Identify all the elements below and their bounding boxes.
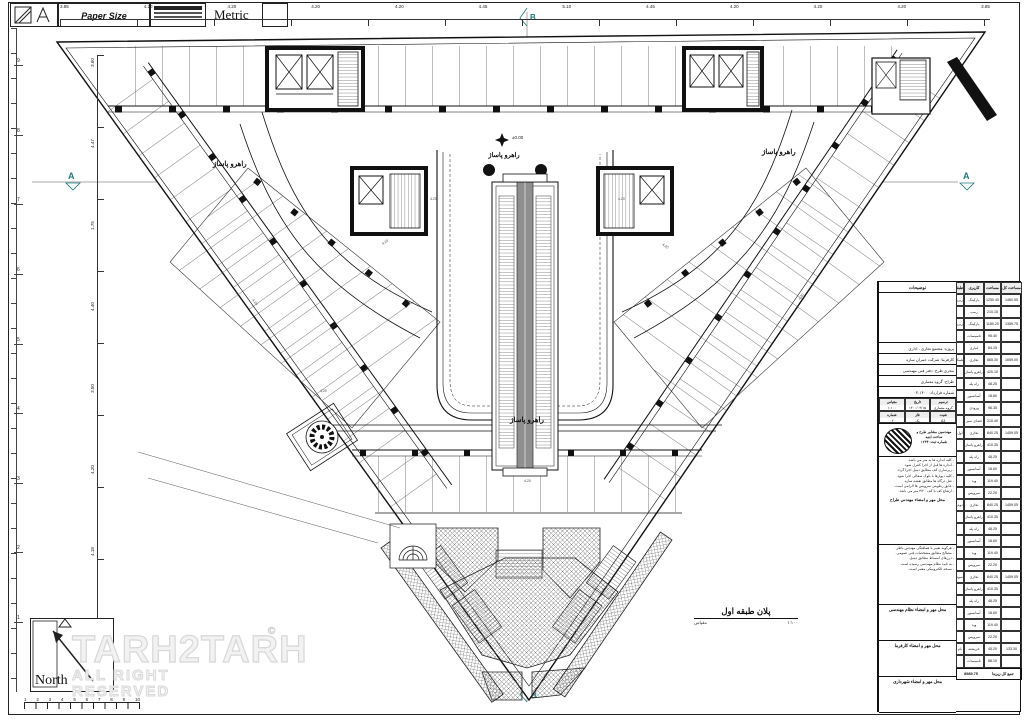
cell-area: 96.35 (984, 402, 1001, 414)
scale-number: 7 (98, 697, 101, 702)
top-dimension-numbers: 3.854.204.204.204.204.455.104.454.204.20… (60, 4, 990, 9)
col-floor: طبقه (956, 282, 964, 294)
cell-usage: انباری (964, 342, 984, 354)
cell-floor (956, 655, 964, 667)
floor-plan-drawing: A A B B (0, 0, 1025, 720)
left-dimension-line (97, 55, 104, 640)
notes-empty-box (879, 293, 956, 343)
dimension-value: 3.50 (90, 384, 95, 393)
staircase (747, 52, 759, 106)
dimension-value: 5.10 (562, 4, 571, 9)
cell-total (1001, 511, 1022, 523)
cell-usage: راهرو پاساژ (964, 583, 984, 595)
cell-total: 1359.75 (1001, 318, 1022, 330)
cell-total (1001, 306, 1022, 318)
cell-usage: وید (964, 475, 984, 487)
cell-floor (956, 607, 964, 619)
cell-total: 1659.00 (1001, 354, 1022, 366)
cell-total (1001, 523, 1022, 535)
seal-box: محل مهر و امضاء شهرداری (879, 677, 956, 713)
core-wing-right (598, 168, 672, 234)
cell-total (1001, 342, 1022, 354)
cell-usage: تجاری (964, 499, 984, 511)
drawing-sheet: A A B B (0, 0, 1025, 720)
table-row: 18.60 آسانسور (956, 607, 1022, 619)
cell-area: 420.10 (984, 366, 1001, 378)
scale-number: 6 (86, 697, 89, 702)
signature-cell: تاریخ۱۴۰۰/۰۴/۱۵ (905, 398, 931, 411)
plan-scale-value: ۱:۱۰۰ (787, 620, 798, 626)
scale-number: 8 (110, 697, 113, 702)
table-row: 1459.05 840.25 تجاری اول (956, 427, 1022, 439)
project-info-row: پروژه: مجتمع تجاری - اداری (879, 343, 956, 354)
cell-usage: راهرو پاساژ (964, 439, 984, 451)
svg-text:4.20: 4.20 (320, 389, 327, 393)
stamp-line2: شماره ثبت: ۱۲۳۴ (914, 440, 954, 445)
stamp-line1: مهندسین مشاور طرح و ساخت ابنیه (914, 430, 954, 440)
staircase (604, 174, 634, 228)
cell-area: 119.40 (984, 619, 1001, 631)
svg-text:4.20: 4.20 (430, 197, 437, 201)
cell-usage: وید (964, 619, 984, 631)
corridor-label-right: راهرو پاساژ (761, 148, 796, 157)
cell-area: 410.35 (984, 439, 1001, 451)
units-bar (154, 12, 202, 14)
cell-area: 840.25 (984, 499, 1001, 511)
seal-boxes: محل مهر و امضاء نظام مهندسیمحل مهر و امض… (879, 605, 956, 713)
cell-area: 22.20 (984, 559, 1001, 571)
cell-floor (956, 511, 964, 523)
svg-text:4.20: 4.20 (524, 479, 531, 483)
cell-floor (956, 378, 964, 390)
cell-area: 22.20 (984, 631, 1001, 643)
col-area: مساحت (984, 282, 1001, 294)
project-info-row: مجری طرح: دفتر فنی مهندسی (879, 365, 956, 376)
cell-floor (956, 583, 964, 595)
plan-title: پلان طبقه اول (694, 606, 798, 619)
cell-area: 84.15 (984, 342, 1001, 354)
cell-usage: راه پله (964, 378, 984, 390)
cell-floor (956, 402, 964, 414)
table-row: 18.60 آسانسور (956, 463, 1022, 475)
section-marker-a-right: A (963, 171, 970, 181)
cell-floor (956, 415, 964, 427)
cell-floor: همکف (956, 354, 964, 366)
cell-usage: تاسیسات (964, 655, 984, 667)
top-dimension-line (60, 19, 990, 26)
table-row: 84.15 انباری (956, 342, 1022, 354)
cell-total (1001, 487, 1022, 499)
sheet-logo-box (10, 3, 58, 27)
cell-total (1001, 378, 1022, 390)
cell-floor (956, 366, 964, 378)
scale-number: 4 (61, 697, 64, 702)
cell-area: 1250.40 (984, 294, 1001, 306)
stair-semicircular (390, 524, 436, 568)
cell-total (1001, 535, 1022, 547)
cell-total (1001, 463, 1022, 475)
cell-total (1001, 415, 1022, 427)
cell-total (1001, 619, 1022, 631)
cell-area: 18.60 (984, 463, 1001, 475)
escalator (492, 174, 558, 476)
cell-total (1001, 631, 1022, 643)
core-top-right (684, 48, 762, 110)
title-block-left: توضیحات پروژه: مجتمع تجاری - اداریکارفرم… (878, 282, 956, 711)
cell-area: 840.25 (984, 427, 1001, 439)
cell-area: 210.40 (984, 415, 1001, 427)
cell-usage: تاسیسات (964, 330, 984, 342)
designer-sign-label: محل مهر و امضاء مهندس طراح (879, 497, 956, 502)
cell-area: 48.25 (984, 595, 1001, 607)
cell-floor (956, 619, 964, 631)
dimension-value: 4.20 (395, 4, 404, 9)
cell-floor: دوم (956, 499, 964, 511)
cell-floor: زیرزمین ۲ (956, 294, 964, 306)
cell-usage: تجاری (964, 427, 984, 439)
cell-total: 1459.05 (1001, 427, 1022, 439)
cell-total (1001, 475, 1022, 487)
cell-usage: پارکینگ (964, 318, 984, 330)
table-row: 48.25 راه پله (956, 378, 1022, 390)
cell-area: 18.60 (984, 390, 1001, 402)
cell-floor (956, 390, 964, 402)
project-info-row: شماره قرارداد: ۱۴۰۰-۰۴ (879, 387, 956, 398)
cell-area: 119.40 (984, 475, 1001, 487)
cell-floor (956, 306, 964, 318)
column-circle-left (484, 165, 495, 176)
cell-floor (956, 487, 964, 499)
col-total: مساحت کل (1001, 282, 1022, 294)
ramp-strip (947, 57, 997, 121)
cell-total (1001, 439, 1022, 451)
cell-total (1001, 390, 1022, 402)
consultant-stamp: مهندسین مشاور طرح و ساخت ابنیه شماره ثبت… (879, 424, 956, 457)
cell-area: 410.35 (984, 511, 1001, 523)
cell-area: 119.40 (984, 547, 1001, 559)
cell-area: 48.25 (984, 378, 1001, 390)
dimension-value: 3.60 (90, 58, 95, 67)
cell-floor (956, 595, 964, 607)
table-row: 22.20 سرویس (956, 487, 1022, 499)
cell-usage: پارکینگ (964, 294, 984, 306)
plan-scale-label: مقیاس (694, 620, 707, 626)
col-usage: کاربری (964, 282, 984, 294)
signature-cell: فازیک (905, 411, 931, 424)
dimension-value: 4.18 (90, 547, 95, 556)
cell-floor (956, 559, 964, 571)
dimension-value: 4.20 (227, 4, 236, 9)
top-shop-band (108, 46, 898, 112)
scale-number: 5 (73, 697, 76, 702)
table-row: 48.25 راه پله (956, 523, 1022, 535)
dimension-value: 3.85 (60, 4, 69, 9)
area-schedule-table: مساحت کل مساحت کاربری طبقه 1460.55 1250.… (956, 282, 1022, 711)
cell-floor (956, 439, 964, 451)
project-info-row: کارفرما: شرکت عمران سازه (879, 354, 956, 365)
table-row: 1659.00 865.30 تجاری همکف (956, 354, 1022, 366)
table-row: 22.20 سرویس (956, 559, 1022, 571)
dimension-value: 4.45 (479, 4, 488, 9)
cell-usage: تجاری (964, 354, 984, 366)
sheet-logo-icon (11, 4, 57, 26)
cell-area: 88.10 (984, 655, 1001, 667)
dimension-value: 3.85 (981, 4, 990, 9)
cell-usage: وید (964, 547, 984, 559)
table-row: 18.60 آسانسور (956, 390, 1022, 402)
project-info-row: طراح: گروه معماری (879, 376, 956, 387)
cell-total (1001, 330, 1022, 342)
signature-grid: ترسیمگروه معماریتاریخ۱۴۰۰/۰۴/۱۵مقیاس۱:۱۰… (879, 398, 956, 424)
staircase (900, 60, 926, 100)
cell-area: 48.25 (984, 451, 1001, 463)
table-row: 119.40 وید (956, 619, 1022, 631)
cell-area: 95.40 (984, 330, 1001, 342)
cell-area: 865.30 (984, 354, 1001, 366)
note-line: - ارتفاع کف تا کف ۴/۲۰ متر می باشد. (881, 489, 954, 494)
cell-usage: سرویس (964, 487, 984, 499)
table-row: 210.40 فضای سبز (956, 415, 1022, 427)
table-row: 1459.05 840.25 تجاری دوم (956, 499, 1022, 511)
cell-area: 840.25 (984, 571, 1001, 583)
scale-number: 9 (123, 697, 126, 702)
table-row: 95.40 تاسیسات (956, 330, 1022, 342)
cell-total: 1459.05 (1001, 571, 1022, 583)
cell-usage: سرویس (964, 631, 984, 643)
project-info-rows: پروژه: مجتمع تجاری - اداریکارفرما: شرکت … (879, 343, 956, 398)
corridor-label-center-top: راهرو پاساژ (487, 151, 520, 159)
dimension-value: 4.40 (90, 302, 95, 311)
signature-cell: مقیاس۱:۱۰۰ (879, 398, 905, 411)
cell-total: 1460.55 (1001, 294, 1022, 306)
seal-box: محل مهر و امضاء کارفرما (879, 641, 956, 677)
footer-value: 8989.75 (964, 672, 978, 676)
table-row: 410.35 راهرو پاساژ (956, 511, 1022, 523)
dimension-value: 4.20 (897, 4, 906, 9)
cell-floor: اول (956, 427, 964, 439)
north-label: North (35, 673, 68, 689)
dimension-value: 4.47 (90, 140, 95, 149)
cell-area: 45.20 (984, 643, 1001, 655)
cell-floor (956, 463, 964, 475)
cell-usage: راه پله (964, 451, 984, 463)
units-bar (154, 16, 202, 18)
table-row: 48.25 راه پله (956, 451, 1022, 463)
scale-bar-ticks (24, 702, 140, 709)
cell-usage: فضای سبز (964, 415, 984, 427)
cell-total (1001, 595, 1022, 607)
table-row: 420.10 راهرو پاساژ (956, 366, 1022, 378)
stamp-logo-icon (884, 428, 912, 454)
table-row: 18.60 آسانسور (956, 535, 1022, 547)
seal-box: محل مهر و امضاء نظام مهندسی (879, 605, 956, 641)
cell-usage: راهرو پاساژ (964, 511, 984, 523)
svg-text:4.20: 4.20 (618, 197, 625, 201)
dimension-value: 4.20 (814, 4, 823, 9)
signature-cell: ترسیمگروه معماری (930, 398, 956, 411)
schedule-rows: 1460.55 1250.40 پارکینگ زیرزمین ۲ 210.15… (956, 294, 1022, 667)
cell-floor (956, 451, 964, 463)
cell-usage: سرویس (964, 559, 984, 571)
cell-area: 48.25 (984, 523, 1001, 535)
dimension-value: 4.20 (730, 4, 739, 9)
cell-floor (956, 330, 964, 342)
cell-area: 22.20 (984, 487, 1001, 499)
cell-floor (956, 535, 964, 547)
cell-usage: راه پله (964, 595, 984, 607)
cell-floor (956, 523, 964, 535)
corridor-label-center-bottom: راهرو پاساژ (509, 416, 544, 425)
cell-usage: تجاری (964, 571, 984, 583)
table-row: 96.35 ورودی (956, 402, 1022, 414)
cell-total (1001, 402, 1022, 414)
cell-area: 1180.20 (984, 318, 1001, 330)
left-edge-ruler (11, 28, 17, 692)
cell-floor (956, 631, 964, 643)
table-row: 88.10 تاسیسات (956, 655, 1022, 667)
cell-total: 133.30 (1001, 643, 1022, 655)
scale-number: 2 (36, 697, 39, 702)
table-row: 210.15 رمپ (956, 306, 1022, 318)
cell-usage: آسانسور (964, 535, 984, 547)
cell-floor (956, 475, 964, 487)
staircase (338, 52, 358, 106)
cell-usage: رمپ (964, 306, 984, 318)
cell-usage: خرپشته (964, 643, 984, 655)
cell-floor: سوم (956, 571, 964, 583)
cell-usage: راهرو پاساژ (964, 366, 984, 378)
dimension-value: 4.20 (144, 4, 153, 9)
cell-floor: زیرزمین ۱ (956, 318, 964, 330)
level-value: ±0.00 (512, 135, 524, 140)
cell-total: 1459.05 (1001, 499, 1022, 511)
core-wing-left (352, 168, 426, 234)
dimension-value: 4.20 (311, 4, 320, 9)
corridor-label-left: راهرو پاساژ (212, 160, 247, 169)
cell-area: 210.15 (984, 306, 1001, 318)
cell-area: 410.35 (984, 583, 1001, 595)
note-line: - نسخه الکترونیکی معتبر است. (881, 567, 954, 572)
table-row: 1359.75 1180.20 پارکینگ زیرزمین ۱ (956, 318, 1022, 330)
table-row: 133.30 45.20 خرپشته بام (956, 643, 1022, 655)
dimension-value: 4.45 (646, 4, 655, 9)
cell-total (1001, 583, 1022, 595)
signature-cell: شیتA3 (930, 411, 956, 424)
table-row: 119.40 وید (956, 547, 1022, 559)
north-arrow-box: North (30, 618, 114, 692)
schedule-footer: جمع کل زیربنا 8989.75 (956, 668, 1022, 680)
plan-title-block: پلان طبقه اول مقیاس ۱:۱۰۰ (694, 606, 798, 626)
cell-total (1001, 655, 1022, 667)
scale-number: 1 (24, 697, 27, 702)
table-row: 48.25 راه پله (956, 595, 1022, 607)
cell-total (1001, 366, 1022, 378)
cell-usage: آسانسور (964, 390, 984, 402)
cell-floor (956, 547, 964, 559)
dimension-value: 1.75 (90, 221, 95, 230)
table-row: 22.20 سرویس (956, 631, 1022, 643)
table-row: 410.35 راهرو پاساژ (956, 583, 1022, 595)
signature-cell: شماره۰۲ (879, 411, 905, 424)
notes-box-2: - هرگونه تغییر با هماهنگی مهندس ناظر.- م… (879, 545, 956, 605)
title-block: توضیحات پروژه: مجتمع تجاری - اداریکارفرم… (877, 281, 1021, 712)
scale-number: 3 (49, 697, 52, 702)
cell-floor (956, 342, 964, 354)
cell-area: 18.60 (984, 535, 1001, 547)
table-row: 119.40 وید (956, 475, 1022, 487)
cell-usage: راه پله (964, 523, 984, 535)
cell-usage: آسانسور (964, 463, 984, 475)
cell-usage: آسانسور (964, 607, 984, 619)
table-row: 1460.55 1250.40 پارکینگ زیرزمین ۲ (956, 294, 1022, 306)
cell-total (1001, 451, 1022, 463)
cell-total (1001, 607, 1022, 619)
core-top-left (267, 48, 363, 110)
table-row: 410.35 راهرو پاساژ (956, 439, 1022, 451)
cell-floor: بام (956, 643, 964, 655)
cell-area: 18.60 (984, 607, 1001, 619)
notes-title: توضیحات (879, 282, 956, 293)
schedule-header-row: مساحت کل مساحت کاربری طبقه (956, 282, 1022, 294)
notes-box-1: - کلیه اندازه ها به متر می باشد.- اندازه… (879, 457, 956, 545)
stair-center (496, 550, 542, 578)
cell-total (1001, 559, 1022, 571)
table-row: 1459.05 840.25 تجاری سوم (956, 571, 1022, 583)
cell-total (1001, 547, 1022, 559)
dimension-value: 4.20 (90, 465, 95, 474)
staircase (390, 174, 420, 228)
left-dimension-numbers: 3.604.471.754.403.504.204.183.60 (88, 60, 97, 635)
graphic-scale-bar: 12345678910 (24, 697, 140, 709)
footer-label: جمع کل زیربنا (992, 671, 1014, 676)
cell-usage: ورودی (964, 402, 984, 414)
section-marker-a-left: A (68, 171, 75, 181)
scale-number: 10 (135, 697, 140, 702)
